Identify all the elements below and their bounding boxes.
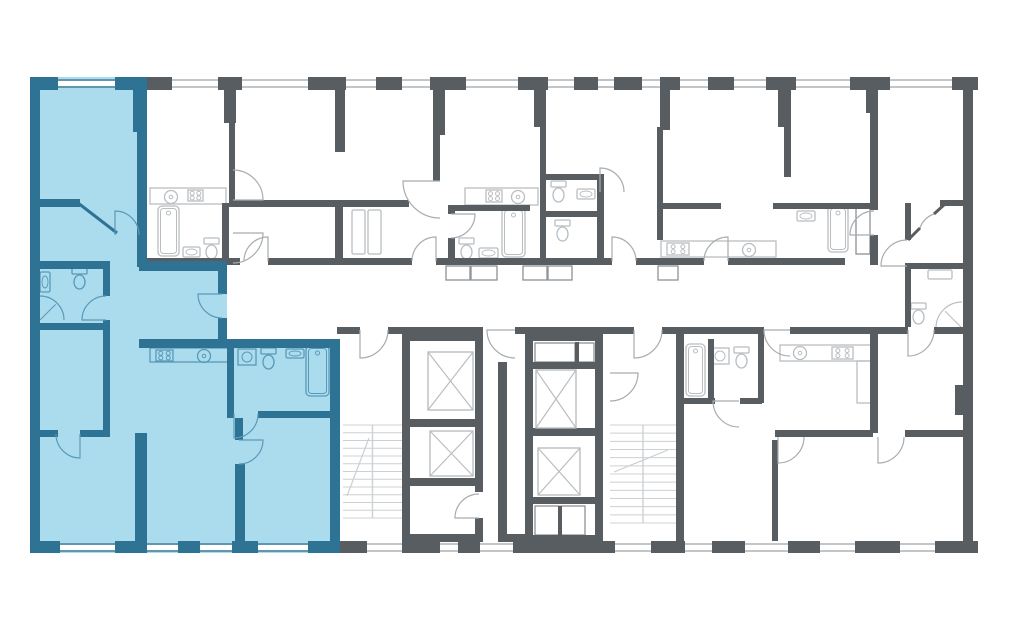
wall-segment xyxy=(376,77,402,90)
door-arc xyxy=(612,237,636,261)
fixture-mirror-icon xyxy=(928,270,952,279)
wall-segment xyxy=(712,541,745,553)
wall-segment xyxy=(772,440,778,541)
highlight-wall-segment xyxy=(139,261,227,271)
fixture-stove-icon xyxy=(188,190,203,201)
wall-segment xyxy=(448,205,530,211)
wall-segment xyxy=(905,263,963,269)
highlight-wall-segment xyxy=(308,541,340,553)
fixture-shelf-icon xyxy=(352,210,365,254)
highlight-wall-segment xyxy=(135,433,147,541)
wall-segment xyxy=(540,127,546,258)
wall-segment xyxy=(402,333,483,341)
fixture-toilet-icon xyxy=(551,181,566,202)
shaft-box xyxy=(577,343,594,362)
highlight-wall-segment xyxy=(178,541,200,553)
wall-segment xyxy=(475,341,483,492)
elevator-icon xyxy=(536,370,576,428)
fixture-sink-icon xyxy=(479,248,498,258)
wall-segment xyxy=(534,90,546,127)
wall-segment xyxy=(448,238,455,258)
wall-segment xyxy=(388,327,483,334)
selected-apartment-region xyxy=(30,77,147,553)
wall-segment xyxy=(518,77,548,90)
wall-segment xyxy=(525,362,603,369)
door-arc xyxy=(233,170,263,200)
selected-apartment-region xyxy=(139,261,227,347)
wall-segment xyxy=(657,127,663,240)
wall-segment xyxy=(229,123,235,200)
door-arc xyxy=(920,214,934,228)
wall-segment xyxy=(402,541,440,553)
fixture-toilet-icon xyxy=(204,238,219,259)
wall-segment xyxy=(498,362,507,534)
fixture-showerbr-icon xyxy=(936,302,962,328)
fixture-stove-icon xyxy=(486,190,502,202)
fixture-sink-icon xyxy=(286,349,304,358)
fixture-washer-icon xyxy=(238,349,256,365)
wall-segment xyxy=(740,398,762,404)
fixture-tub-icon xyxy=(158,206,179,256)
wall-segment xyxy=(436,258,612,265)
wall-segment xyxy=(955,385,963,415)
highlight-wall-segment xyxy=(227,347,234,418)
door-arc xyxy=(634,330,662,358)
wall-segment xyxy=(515,327,634,334)
door-arc xyxy=(778,437,804,463)
wall-segment xyxy=(433,90,445,135)
wall-segment xyxy=(773,203,878,209)
fixture-tub-icon xyxy=(502,208,525,257)
wall-segment xyxy=(337,327,360,334)
door-arc xyxy=(451,214,475,238)
wall-segment xyxy=(525,341,533,535)
highlight-wall-segment xyxy=(139,339,340,348)
highlight-wall-segment xyxy=(115,541,147,553)
highlight-wall-segment xyxy=(38,430,58,437)
highlight-wall-segment xyxy=(330,339,340,553)
door-arc xyxy=(412,237,436,261)
wall-segment xyxy=(147,77,172,90)
wall-segment xyxy=(855,541,900,553)
highlight-wall-segment xyxy=(38,199,80,207)
wall-segment xyxy=(545,211,604,217)
wall-segment xyxy=(651,541,685,553)
wall-segment xyxy=(660,77,680,90)
door-arc xyxy=(487,330,515,358)
highlight-wall-segment xyxy=(30,77,58,90)
wall-segment xyxy=(229,200,409,207)
wall-segment xyxy=(268,258,412,265)
duct-box xyxy=(658,266,678,280)
shaft-box xyxy=(535,343,575,362)
staircase xyxy=(610,425,676,523)
wall-segment xyxy=(905,266,911,327)
wall-segment xyxy=(525,333,603,341)
highlight-wall-segment xyxy=(232,541,258,553)
wall-segment xyxy=(458,541,480,553)
wall-segment xyxy=(708,77,734,90)
door-arc xyxy=(610,373,638,401)
wall-segment xyxy=(790,327,908,334)
wall-segment xyxy=(636,258,704,265)
wall-segment xyxy=(595,341,603,535)
fixture-sink-icon xyxy=(183,247,200,257)
wall-segment xyxy=(758,333,764,403)
door-arc xyxy=(713,401,739,427)
wall-segment xyxy=(525,535,603,543)
duct-box xyxy=(523,266,547,280)
wall-segment xyxy=(952,77,978,90)
fixture-sinkv-icon xyxy=(40,272,50,292)
door-arc xyxy=(878,437,904,463)
fixture-stove-icon xyxy=(667,243,689,255)
fixture-toilet-icon xyxy=(911,303,926,324)
fixture-counter-icon xyxy=(857,361,872,403)
fixture-tub-icon xyxy=(686,344,705,396)
highlight-wall-segment xyxy=(133,90,147,132)
wall-segment xyxy=(788,541,820,553)
fixture-stove-icon xyxy=(156,350,173,361)
wall-segment xyxy=(222,203,229,258)
door-arc xyxy=(244,237,268,261)
door-arc xyxy=(455,494,479,518)
wall-segment xyxy=(433,135,440,181)
wall-segment xyxy=(545,174,604,180)
wall-segment xyxy=(224,90,236,123)
wall-segment xyxy=(963,128,973,541)
stair-arrow xyxy=(614,450,668,472)
wall-segment xyxy=(766,77,796,90)
elevator-icon xyxy=(428,352,473,410)
wall-segment xyxy=(218,77,242,90)
wall-segment xyxy=(905,203,911,240)
elevator-icon xyxy=(430,431,473,476)
fixture-toilet-icon xyxy=(459,238,474,259)
wall-segment xyxy=(870,77,878,210)
wall-segment xyxy=(335,90,345,152)
wall-segment xyxy=(525,428,603,436)
wall-segment xyxy=(662,327,764,334)
fixture-stove-icon xyxy=(832,347,853,359)
diagonal-wall xyxy=(934,204,945,214)
wall-segment xyxy=(784,87,791,177)
wall-segment xyxy=(775,430,873,437)
highlight-wall-segment xyxy=(258,411,330,418)
shaft-box xyxy=(535,506,559,535)
highlight-wall-segment xyxy=(103,320,110,430)
floor-plan-svg xyxy=(0,0,1024,632)
door-arc xyxy=(881,240,907,266)
highlight-wall-segment xyxy=(218,261,227,294)
highlight-wall-segment xyxy=(30,77,40,553)
wall-segment xyxy=(402,341,410,541)
shaft-box xyxy=(561,506,585,535)
fixture-toilet-icon xyxy=(734,347,749,368)
wall-segment xyxy=(684,398,715,404)
wall-segment xyxy=(614,77,642,90)
highlight-wall-segment xyxy=(103,261,110,296)
wall-segment xyxy=(663,203,721,209)
duct-box xyxy=(548,266,572,280)
door-arc xyxy=(403,181,440,218)
fixture-toilet-icon xyxy=(555,220,570,241)
floor-plan xyxy=(0,0,1024,632)
fixture-tub-icon xyxy=(306,346,329,396)
wall-segment xyxy=(728,258,845,265)
highlight-wall-segment xyxy=(80,430,110,437)
wall-segment xyxy=(575,342,579,362)
duct-box xyxy=(446,266,470,280)
wall-segment xyxy=(934,327,963,334)
wall-segment xyxy=(574,77,598,90)
wall-segment xyxy=(676,333,684,541)
wall-segment xyxy=(870,235,878,265)
fixture-sink-icon xyxy=(577,189,595,199)
wall-segment xyxy=(475,518,483,534)
wall-segment xyxy=(660,90,670,130)
wall-segment xyxy=(430,77,466,90)
wall-segment xyxy=(410,478,475,486)
wall-segment xyxy=(402,534,483,542)
wall-segment xyxy=(308,77,346,90)
elevator-icon xyxy=(538,448,580,495)
wall-segment xyxy=(935,541,978,553)
wall-segment xyxy=(335,200,343,258)
wall-segment xyxy=(708,339,714,401)
highlight-wall-segment xyxy=(235,464,245,541)
wall-segment xyxy=(905,430,963,437)
fixture-shelf-icon xyxy=(368,210,381,254)
wall-segment xyxy=(448,205,455,214)
staircase xyxy=(343,425,402,518)
wall-segment xyxy=(525,497,603,504)
apartment-highlight-layer xyxy=(30,77,340,553)
stairs-layer xyxy=(343,425,676,523)
wall-segment xyxy=(963,90,973,128)
fixture-sink-icon xyxy=(797,211,815,221)
highlight-wall-segment xyxy=(38,261,110,269)
highlight-wall-segment xyxy=(38,323,103,330)
fixture-tub-icon xyxy=(828,206,848,252)
duct-box xyxy=(471,266,497,280)
wall-segment xyxy=(410,419,475,427)
door-arc xyxy=(360,330,388,358)
wall-segment xyxy=(498,534,525,542)
wall-segment xyxy=(558,506,562,535)
wall-segment xyxy=(870,333,878,433)
wall-segment xyxy=(337,541,367,553)
wall-segment xyxy=(226,258,240,265)
door-arc xyxy=(908,330,934,356)
highlight-wall-segment xyxy=(30,541,60,553)
